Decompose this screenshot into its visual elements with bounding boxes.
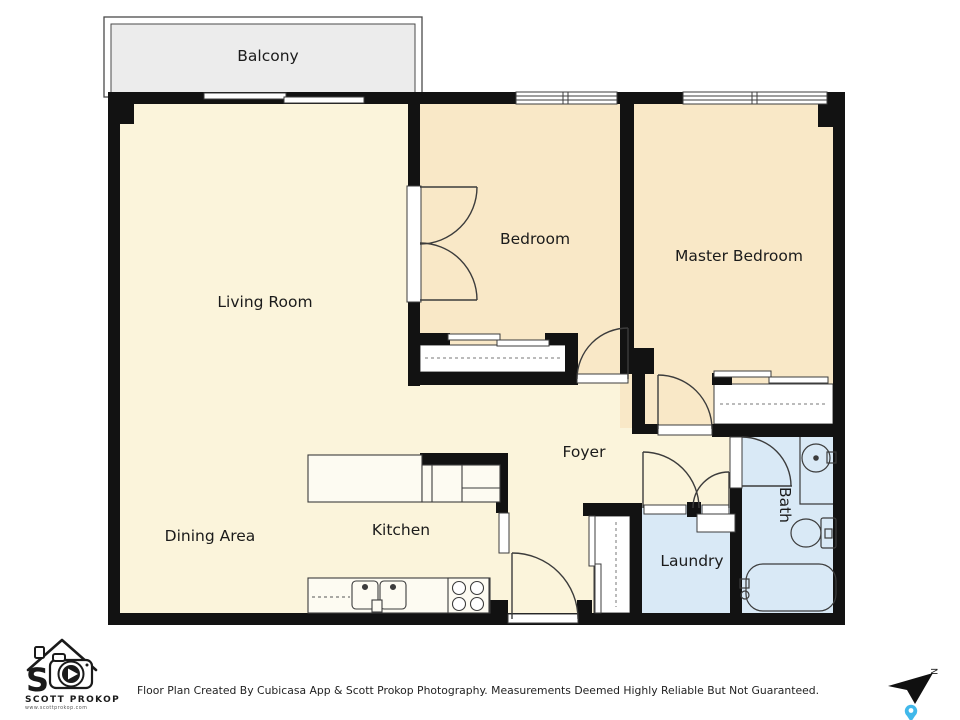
compass: N [888,668,938,720]
laundry-door-threshold-left [644,505,686,514]
logo-monogram: S [26,661,49,699]
master-bedroom-window [683,92,827,104]
wall-corner-tl [108,92,134,124]
wall-foyer-closet-right [630,516,642,613]
laundry-fixtures [697,514,735,532]
wall-bedroom-closet-bottom [408,372,577,385]
wall-bedroom-closet-left [408,333,450,345]
room-label-bath: Bath [776,487,794,523]
wall-bath-left [730,488,742,613]
room-label-balcony: Balcony [237,47,298,65]
floor-plan-svg: Balcony Living Room Bedroom Master Bedro… [0,0,960,720]
wall-right [833,92,845,625]
wall-left [108,92,120,625]
stove [448,578,489,613]
brand-logo: S SCOTT PROKOP www.scottprokop.com [25,640,120,711]
floor-plan-page: Balcony Living Room Bedroom Master Bedro… [0,0,960,720]
logo-chimney-icon [35,647,44,658]
room-label-master-bedroom: Master Bedroom [675,247,803,265]
wall-bath-top [712,424,845,437]
north-label: N [928,668,938,675]
logo-name: SCOTT PROKOP [25,695,120,705]
entry-door-threshold [508,614,578,623]
bath-door-threshold [730,437,742,488]
master-closet-box [714,384,833,424]
footer-disclaimer: Floor Plan Created By Cubicasa App & Sco… [137,684,819,697]
wall-bedroom-master [620,98,634,350]
bedroom-door-threshold [577,374,628,383]
wall-foyer-closet-top [583,503,642,516]
room-label-dining-area: Dining Area [165,527,256,545]
north-arrow-icon [888,673,933,704]
laundry-door-threshold-right [702,505,729,514]
wall-living-bedroom-upper [408,98,420,186]
logo-camera-icon [50,654,92,688]
room-label-bedroom: Bedroom [500,230,570,248]
wall-bottom [108,613,845,625]
room-label-laundry: Laundry [660,552,723,570]
bedroom-window [516,92,617,104]
laundry-shelf [697,514,735,532]
wall-bedroom-master-block [620,348,654,374]
room-label-kitchen: Kitchen [372,521,430,539]
room-label-foyer: Foyer [563,443,607,461]
closet-door-frame [407,186,421,302]
wall-master-door-jamb [643,424,659,434]
entry-side-panel [499,513,509,553]
room-label-living-room: Living Room [217,293,312,311]
wall-kitchen-stub [488,600,508,625]
location-pin-icon [905,705,917,720]
logo-website: www.scottprokop.com [25,705,87,711]
wall-kitchen-top [420,453,508,465]
kitchen-island-counter [308,455,422,502]
wall-entry-step [577,600,592,613]
wall-corner-tr [818,104,833,127]
master-door-threshold [658,425,712,435]
kitchen-right-counter [422,465,500,502]
